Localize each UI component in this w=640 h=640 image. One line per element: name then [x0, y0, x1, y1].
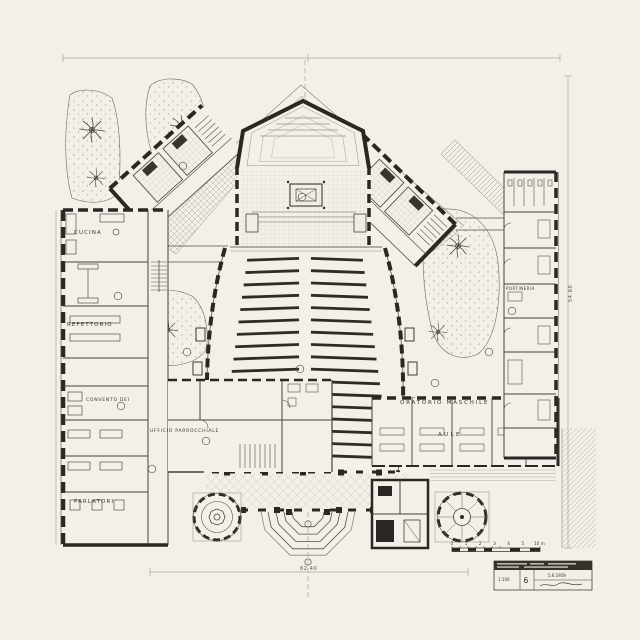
label-convento: CONVENTO DEI	[86, 397, 130, 403]
scale-bar: 0 1 2 3 4 5 10 m	[451, 541, 545, 552]
side-chapel-round	[435, 492, 489, 542]
dimension-side-height: 54.60	[568, 285, 574, 302]
label-cucina: CUCINA	[74, 230, 102, 236]
title-block-sheet-number: 6	[524, 576, 529, 585]
label-refettorio: REFETTORIO	[67, 322, 113, 328]
label-ufficio-parrocchiale: UFFICIO PARROCCHIALE	[150, 428, 219, 434]
title-block-scale: 1:100	[498, 577, 510, 582]
baptistery	[193, 493, 241, 541]
title-block-date: 5.6.1959	[548, 573, 566, 578]
dimension-front-width: 62.40	[300, 566, 317, 572]
label-aule: AULE	[438, 432, 462, 438]
scale-bar-numbers: 0 1 2 3 4 5	[451, 541, 530, 546]
service-rooms	[372, 480, 428, 548]
scanned-floor-plan-page: 0 1 2 3 4 5 10 m 1:100 6 5.6.1959 CUCINA…	[0, 0, 640, 640]
floor-plan-drawing: 0 1 2 3 4 5 10 m 1:100 6 5.6.1959 CUCINA…	[0, 0, 640, 640]
scale-bar-end: 10 m	[534, 541, 545, 546]
parish-office-block	[168, 380, 332, 472]
label-parlatori: PARLATORI	[74, 499, 114, 505]
label-oratorio-maschile: ORATORIO MASCHILE	[400, 400, 489, 406]
title-block: 1:100 6 5.6.1959	[494, 561, 592, 590]
label-portineria: PORTINERIA	[506, 286, 535, 291]
